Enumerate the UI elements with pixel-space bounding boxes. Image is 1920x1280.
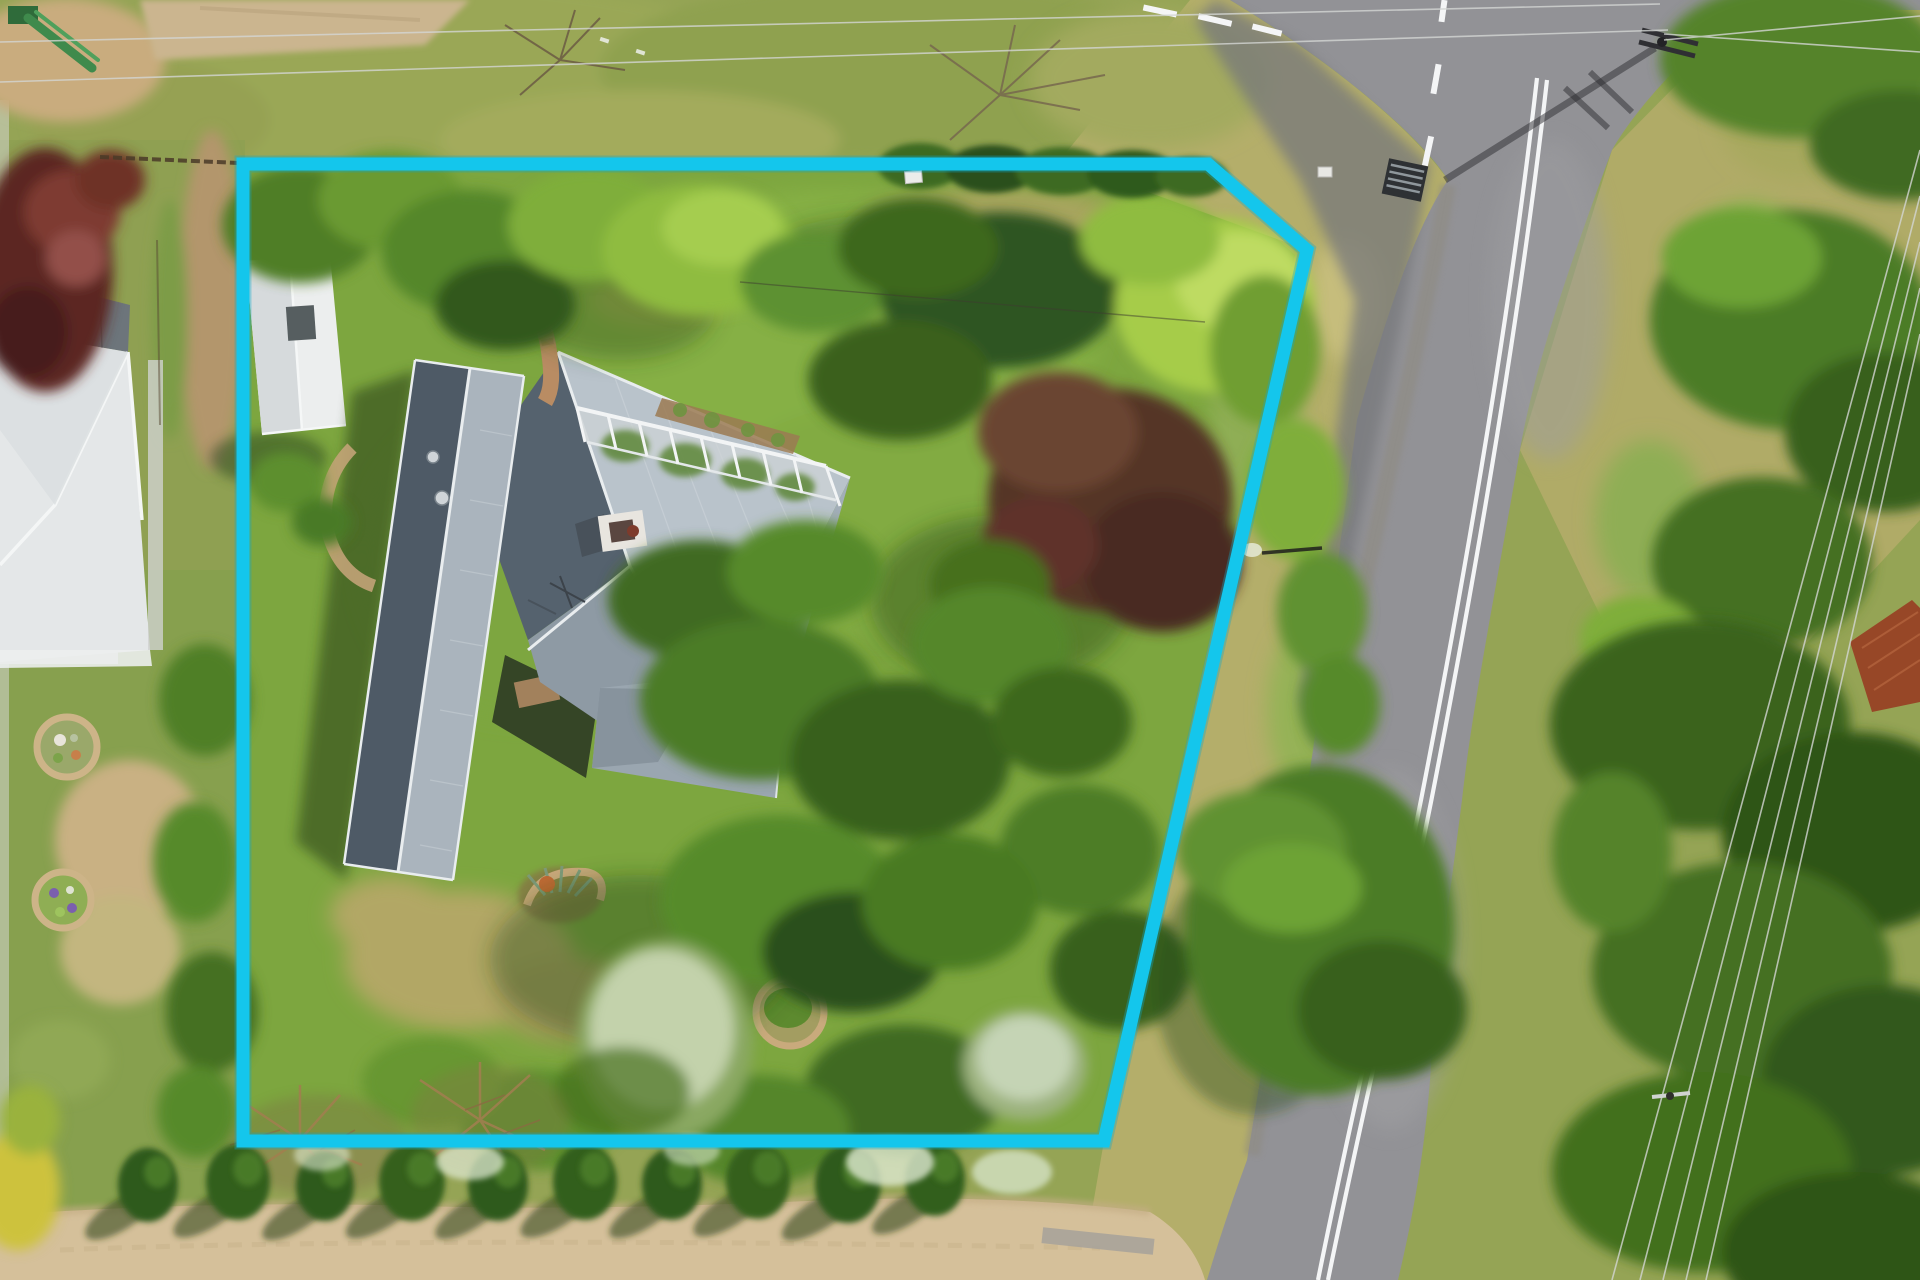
roof-vent	[427, 451, 439, 463]
garden-circle-bed	[37, 717, 97, 777]
terracotta-pot	[539, 876, 555, 892]
yellow-bush	[0, 1085, 60, 1250]
utility-box	[1318, 167, 1332, 177]
aerial-photo	[0, 0, 1920, 1280]
neighbor-roof-lower-edge	[0, 650, 152, 668]
garden-circle-bed	[35, 872, 91, 928]
roof-vent	[435, 491, 449, 505]
